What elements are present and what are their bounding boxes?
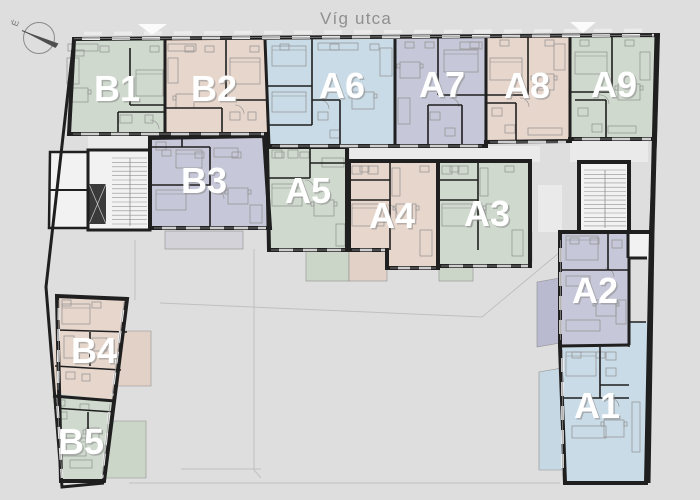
svg-text:A2: A2 xyxy=(572,270,618,311)
svg-text:B2: B2 xyxy=(191,68,237,109)
svg-text:A4: A4 xyxy=(369,195,415,236)
svg-text:B4: B4 xyxy=(71,330,117,371)
svg-text:Víg utca: Víg utca xyxy=(320,9,392,28)
svg-text:A9: A9 xyxy=(591,64,637,105)
svg-text:A1: A1 xyxy=(574,385,620,426)
svg-text:A8: A8 xyxy=(504,65,550,106)
svg-text:B1: B1 xyxy=(94,68,140,109)
svg-text:B3: B3 xyxy=(181,160,227,201)
svg-text:A3: A3 xyxy=(464,193,510,234)
svg-text:A5: A5 xyxy=(285,170,331,211)
svg-text:A7: A7 xyxy=(419,64,465,105)
svg-text:B5: B5 xyxy=(58,421,104,462)
svg-text:A6: A6 xyxy=(319,65,365,106)
